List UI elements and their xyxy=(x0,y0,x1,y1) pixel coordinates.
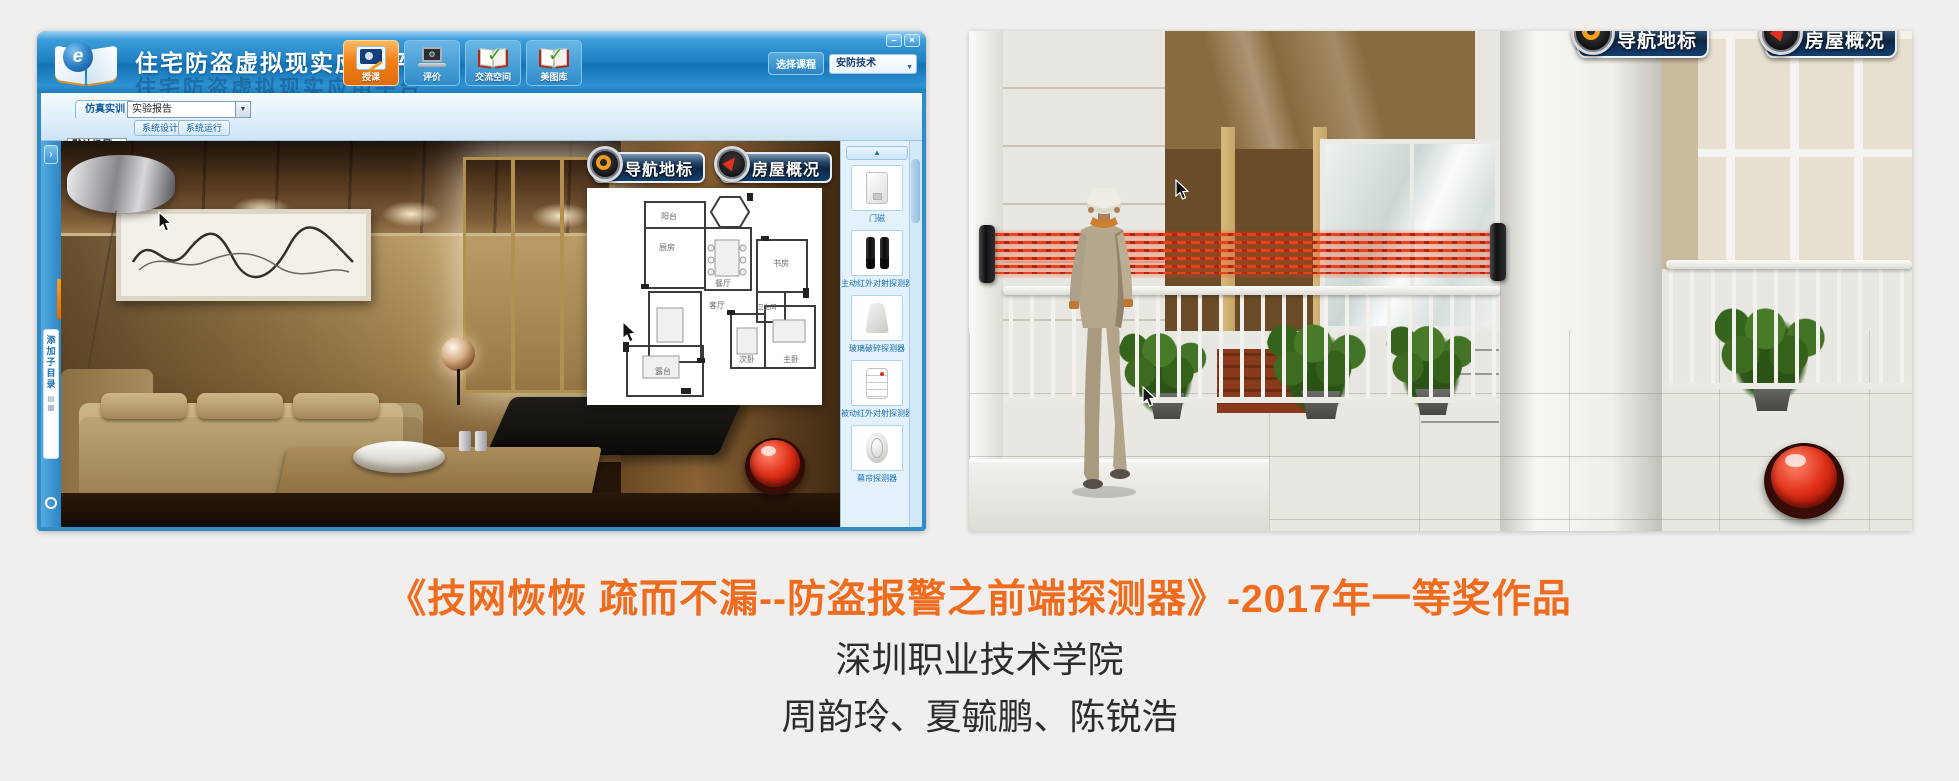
emergency-alarm-button[interactable] xyxy=(745,438,805,495)
railing-top-rail xyxy=(1666,260,1912,269)
device-curtain-detector[interactable] xyxy=(851,425,903,471)
vr-platform-window: e 住宅防盗虚拟现实应用平台 住宅防盗虚拟现实应用平台 授课 ⚙ 评价 ✓ 交流… xyxy=(37,31,926,531)
curtain-detector-icon xyxy=(866,433,888,463)
presentation-slide: e 住宅防盗虚拟现实应用平台 住宅防盗虚拟现实应用平台 授课 ⚙ 评价 ✓ 交流… xyxy=(0,0,1959,781)
glass-break-icon xyxy=(865,303,889,333)
railing-bottom-rail xyxy=(1666,383,1912,389)
nav-landmark-button[interactable]: 导航地标 xyxy=(593,152,705,183)
main-toolbar: 授课 ⚙ 评价 ✓ 交流空间 ✓ 美图库 xyxy=(343,40,582,86)
book-check-icon: ✓ xyxy=(539,46,569,70)
sphere-floor-lamp xyxy=(441,337,475,371)
tab-bar: 仿真实训 实验报告 ▼ 默认场景 ▼ 系统设计 系统运行 xyxy=(41,93,922,141)
wall-art-frame xyxy=(116,209,371,301)
scrollbar-thumb[interactable] xyxy=(911,159,920,223)
tab-simulation-training[interactable]: 仿真实训 xyxy=(75,100,135,118)
book-check-icon: ✓ xyxy=(478,46,508,70)
chevron-down-icon: ▼ xyxy=(235,102,250,117)
minimize-button[interactable]: – xyxy=(886,34,902,47)
compass-arrow-icon xyxy=(714,146,750,182)
nav-landmark-button[interactable]: 导航地标 xyxy=(1577,31,1709,58)
left-rail: › 添加子目录 ▤▦ xyxy=(41,141,61,527)
scroll-up-icon[interactable]: ▲ xyxy=(846,146,908,160)
course-select-label: 选择课程 xyxy=(768,52,824,75)
mouse-cursor xyxy=(1141,386,1156,408)
school-name: 深圳职业技术学院 xyxy=(0,631,1959,683)
toolbar-button-evaluate[interactable]: ⚙ 评价 xyxy=(404,40,460,86)
teach-icon xyxy=(356,46,386,70)
passive-ir-icon xyxy=(866,368,888,399)
award-title: 《技网恢恢 疏而不漏--防盗报警之前端探测器》-2017年一等奖作品 xyxy=(0,568,1959,624)
window-titlebar: e 住宅防盗虚拟现实应用平台 住宅防盗虚拟现实应用平台 授课 ⚙ 评价 ✓ 交流… xyxy=(37,31,926,93)
sofa-cushion xyxy=(293,393,379,419)
window-controls: – × xyxy=(886,34,920,47)
device-glass-break-detector[interactable] xyxy=(851,295,903,341)
svg-text:厨房: 厨房 xyxy=(659,242,675,252)
device-list: 门磁 主动红外对射探测器 玻璃破碎探测器 被动红外对射探测器 幕帘探测器 xyxy=(846,165,908,490)
cup xyxy=(475,431,487,451)
author-names: 周韵玲、夏毓鹏、陈锐浩 xyxy=(0,688,1959,740)
compass-arrow-icon xyxy=(1759,31,1803,55)
rail-tool-icons: ▤▦ xyxy=(47,394,55,412)
course-dropdown[interactable]: 安防技术 ▼ xyxy=(829,54,917,74)
cup xyxy=(459,431,471,451)
chevron-down-icon: ▼ xyxy=(906,59,913,77)
window-content: › 添加子目录 ▤▦ xyxy=(41,141,922,527)
right-window-wall xyxy=(1662,31,1912,269)
fruit-bowl xyxy=(353,441,445,473)
house-overview-button[interactable]: 房屋概况 xyxy=(1765,31,1897,58)
svg-text:次卧: 次卧 xyxy=(739,354,755,364)
mouse-cursor xyxy=(157,211,172,233)
add-subdirectory-control[interactable]: 添加子目录 ▤▦ xyxy=(43,329,59,459)
svg-text:书房: 书房 xyxy=(773,258,789,268)
expander-icon[interactable]: › xyxy=(44,145,58,164)
arc-lamp-shade xyxy=(67,155,175,213)
svg-text:卫生间: 卫生间 xyxy=(757,302,777,311)
balcony-3d-viewport[interactable]: 导航地标 房屋概况 xyxy=(969,31,1912,531)
evaluate-icon: ⚙ xyxy=(417,46,447,70)
sofa-cushion xyxy=(101,393,187,419)
svg-text:阳台: 阳台 xyxy=(661,211,677,221)
door-magnet-icon xyxy=(866,172,888,204)
svg-text:餐厅: 餐厅 xyxy=(715,279,731,288)
toolbar-button-gallery[interactable]: ✓ 美图库 xyxy=(526,40,582,86)
device-door-magnet[interactable] xyxy=(851,165,903,211)
house-overview-button[interactable]: 房屋概况 xyxy=(720,152,832,183)
rail-logo-icon xyxy=(45,497,57,509)
mouse-cursor xyxy=(1174,179,1189,201)
svg-text:客厅: 客厅 xyxy=(709,300,725,310)
device-passive-ir-detector[interactable] xyxy=(851,360,903,406)
platform-logo-icon: e xyxy=(53,38,121,88)
ceiling-light xyxy=(381,201,441,227)
system-run-button[interactable]: 系统运行 xyxy=(178,120,230,136)
floor xyxy=(61,493,840,527)
compass-icon xyxy=(587,146,623,182)
toolbar-button-teach[interactable]: 授课 xyxy=(343,40,399,86)
course-selector: 选择课程 安防技术 ▼ xyxy=(768,52,917,75)
emergency-alarm-button[interactable] xyxy=(1764,443,1844,519)
living-room-3d-viewport[interactable]: 导航地标 房屋概况 xyxy=(61,141,840,527)
ir-detector-left[interactable] xyxy=(979,225,995,283)
toolbar-button-exchange[interactable]: ✓ 交流空间 xyxy=(465,40,521,86)
svg-text:主卧: 主卧 xyxy=(783,354,799,364)
sofa-cushion xyxy=(197,393,283,419)
svg-text:露台: 露台 xyxy=(655,366,671,376)
sphere-lamp-stand xyxy=(457,369,460,405)
close-button[interactable]: × xyxy=(904,34,920,47)
compass-icon xyxy=(1571,31,1615,55)
report-dropdown[interactable]: 实验报告 ▼ xyxy=(127,101,251,118)
active-ir-icon xyxy=(866,237,889,269)
window-body: 仿真实训 实验报告 ▼ 默认场景 ▼ 系统设计 系统运行 › xyxy=(41,93,922,527)
railing-bars xyxy=(1669,269,1912,387)
floorplan-overlay[interactable]: 阳台 厨房 餐厅 书房 卫生间 客厅 次卧 主卧 露台 xyxy=(587,188,822,405)
walking-person xyxy=(1057,174,1149,499)
device-active-ir-detector[interactable] xyxy=(851,230,903,276)
ir-detector-right[interactable] xyxy=(1490,223,1506,281)
